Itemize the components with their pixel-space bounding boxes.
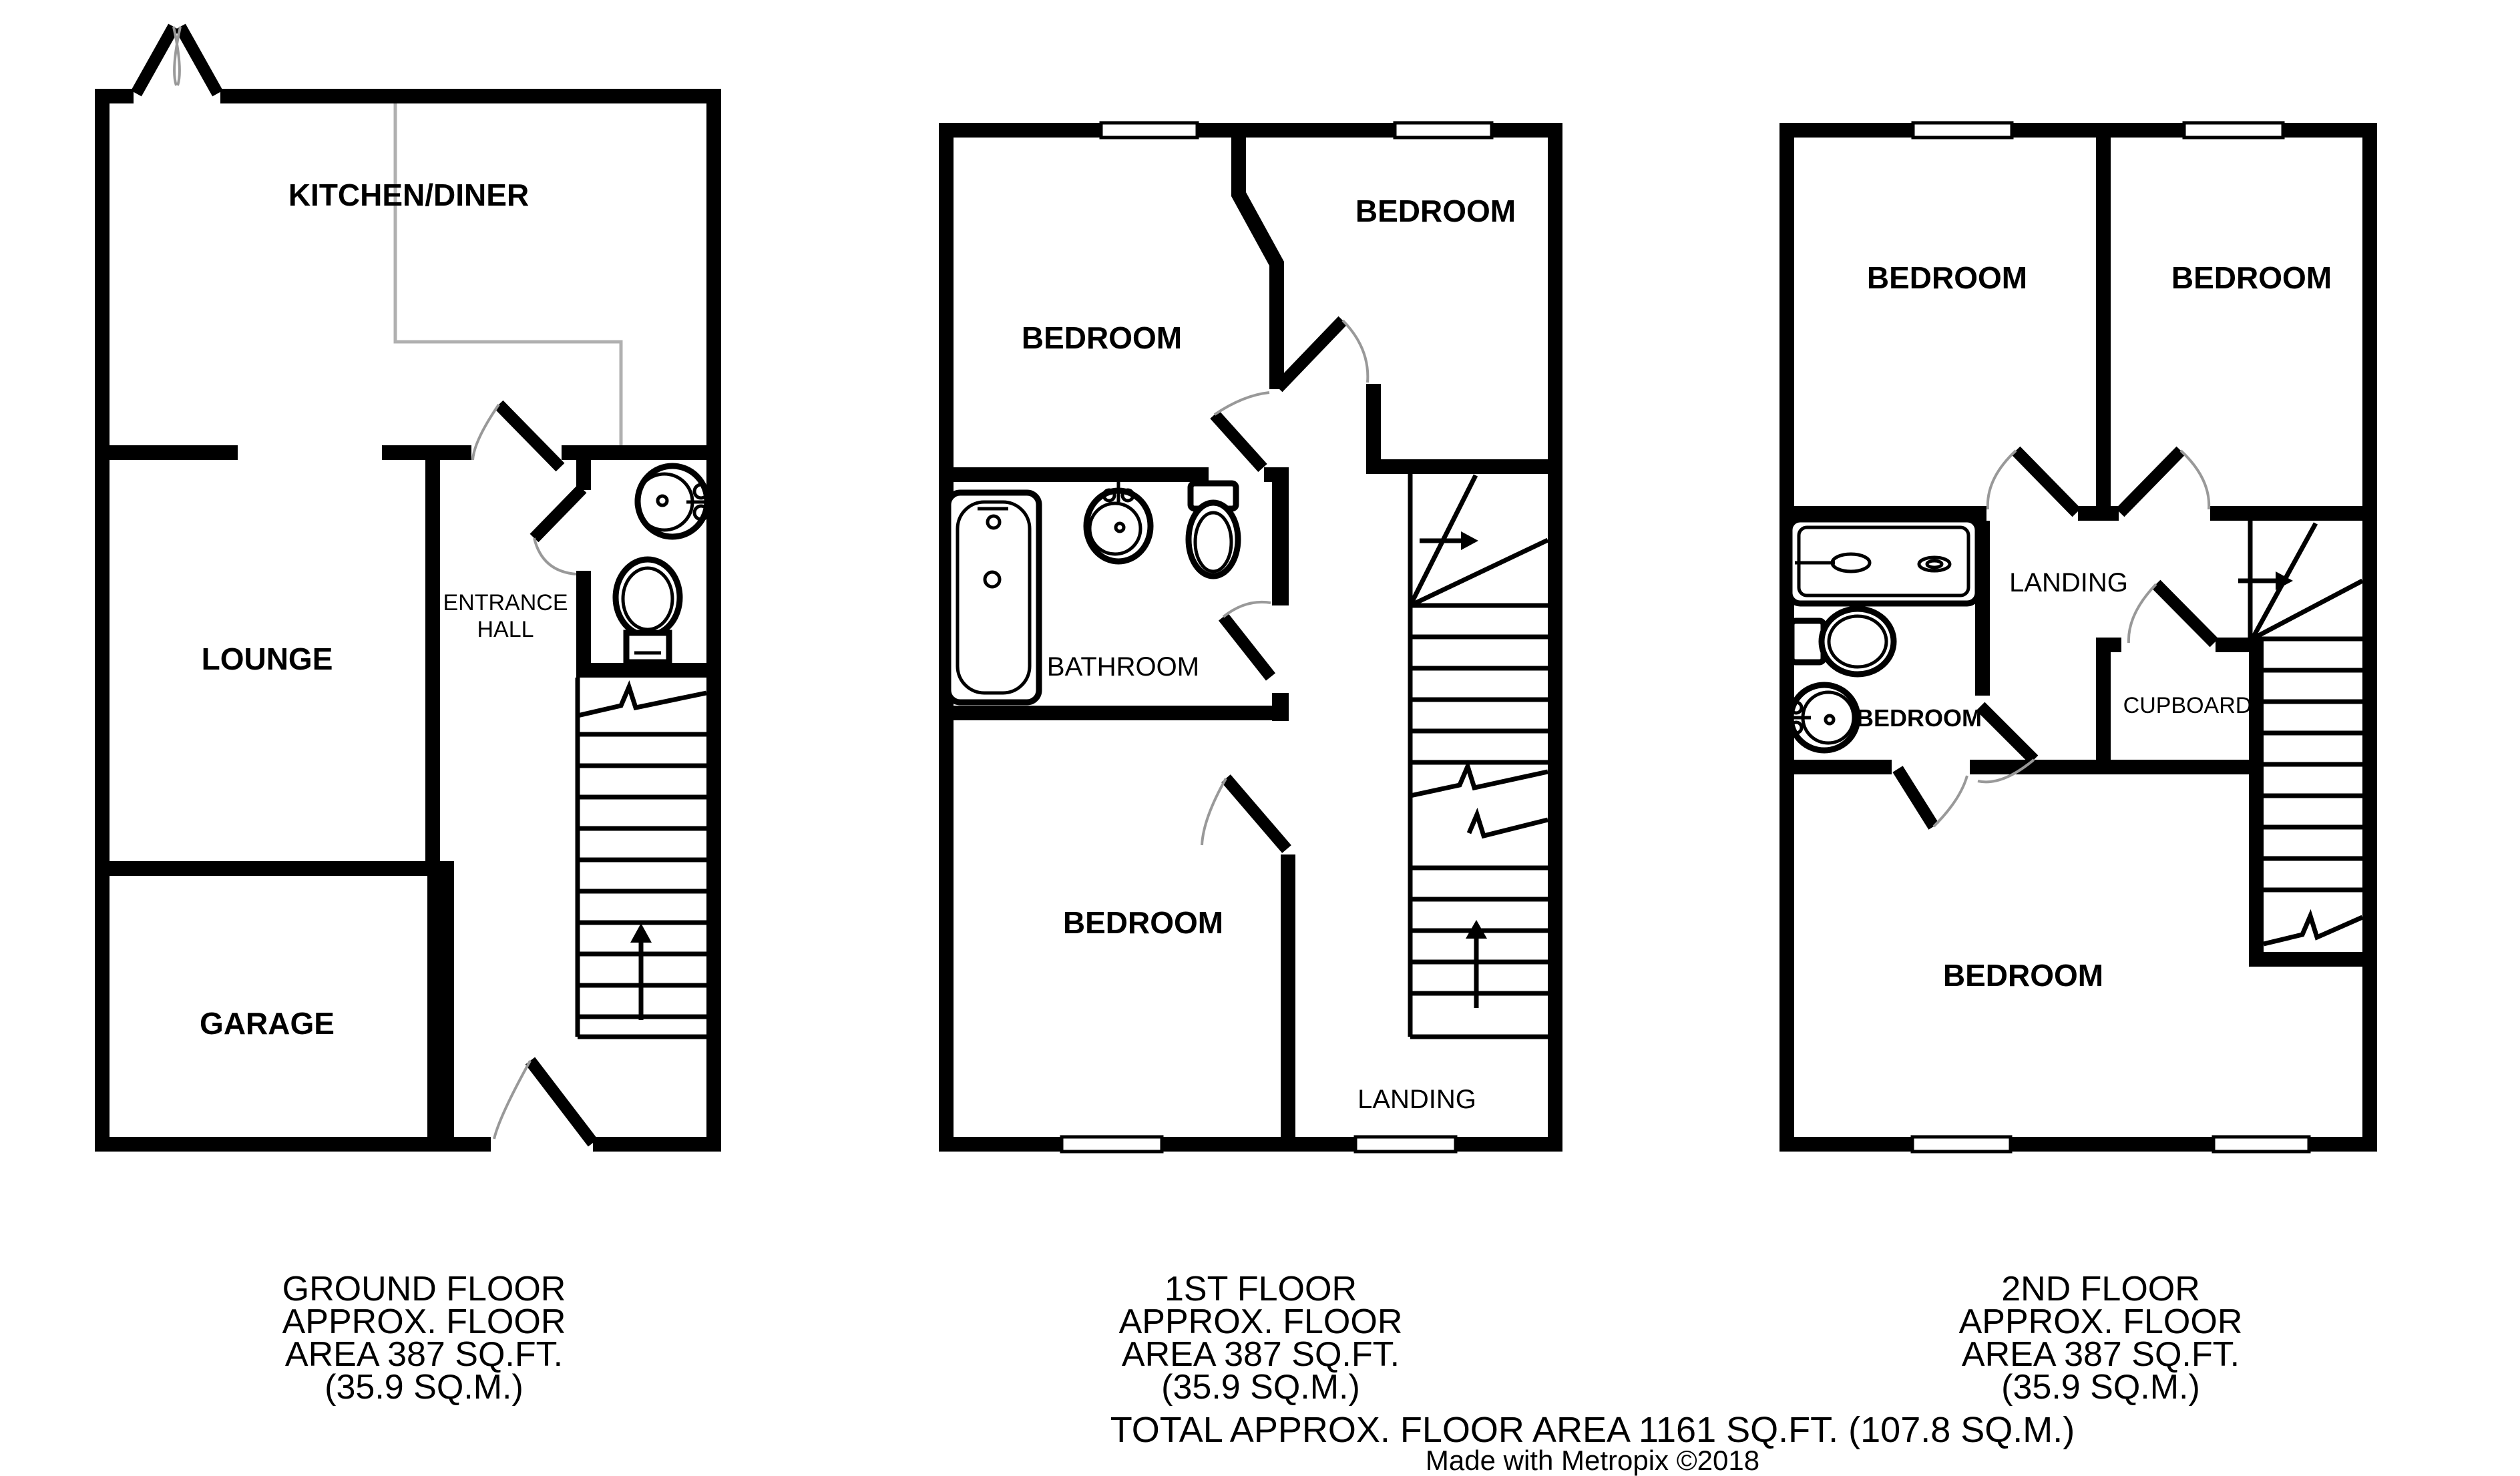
bedroom-back-door-arc [1343, 320, 1368, 383]
footer-line: (35.9 SQ.M.) [325, 1368, 523, 1407]
room-label-lounge: LOUNGE [202, 642, 333, 676]
ground-floor-plan: KITCHEN/DINER LOUNGE ENTRANCE HALL GARAG… [95, 27, 721, 1152]
bedroom-main-door-leaf [1898, 769, 1934, 826]
wc-door-leaf [534, 489, 582, 538]
stair-break-line [1410, 766, 1548, 796]
room-label-entrance-line2: HALL [477, 617, 534, 642]
second-floor-footer: 2ND FLOOR APPROX. FLOOR AREA 387 SQ.FT. … [1959, 1270, 2243, 1407]
bedroom-back-door-leaf [1278, 320, 1343, 388]
wc-door-arc [534, 538, 576, 574]
stair-right-arrowhead [1461, 531, 1478, 550]
floorplan-page: KITCHEN/DINER LOUNGE ENTRANCE HALL GARAG… [0, 0, 2520, 1476]
window [2184, 123, 2283, 138]
window [1395, 123, 1492, 138]
room-label-bedroom-left: BEDROOM [1867, 260, 2027, 295]
ensuite-bath-icon [1790, 519, 1978, 603]
second-floor-plan: BEDROOM BEDROOM LANDING BEDROOM CUPBOARD… [1779, 123, 2377, 1152]
kitchen-hall-door-leaf [499, 405, 560, 467]
bedroom-right-door-leaf [2120, 451, 2181, 513]
bedroom-main-door-arc [1934, 776, 1967, 826]
bathroom-sink-icon [1086, 482, 1150, 561]
bedroom-front-door-arc [1215, 393, 1269, 415]
bathroom-toilet-icon [1189, 483, 1238, 576]
room-label-bedroom-front: BEDROOM [1022, 320, 1182, 355]
bedroom-right-door-arc [2181, 451, 2209, 509]
window [1913, 123, 2012, 138]
cupboard-door-arc [2129, 584, 2156, 643]
bedroom-rear-door-leaf [1226, 778, 1287, 849]
room-label-kitchen-diner: KITCHEN/DINER [288, 178, 529, 212]
bedroom-front-door-leaf [1215, 415, 1263, 468]
cupboard-door-leaf [2156, 584, 2214, 643]
room-label-ensuite-bedroom: BEDROOM [1856, 704, 1982, 732]
room-label-garage: GARAGE [200, 1006, 335, 1041]
stair-up-arrowhead [630, 923, 652, 943]
footer-line: (35.9 SQ.M.) [2001, 1368, 2200, 1407]
room-label-bedroom-main: BEDROOM [1943, 958, 2103, 993]
room-label-cupboard: CUPBOARD [2123, 693, 2252, 718]
ensuite-toilet-icon [1792, 609, 1894, 674]
window [1355, 1137, 1456, 1152]
stair-break-line [1469, 814, 1548, 836]
room-label-bedroom-right: BEDROOM [2171, 260, 2332, 295]
room-label-bedroom-rear: BEDROOM [1063, 905, 1223, 940]
window [1062, 1137, 1162, 1152]
front-door-arc [494, 1061, 530, 1139]
ensuite-sink-icon [1791, 685, 1858, 750]
bathtub-icon [948, 493, 1039, 702]
metropix-credit: Made with Metropix ©2018 [1426, 1445, 1759, 1476]
wc-sink-icon [636, 466, 708, 537]
bedroom-left-door-leaf [2016, 451, 2077, 513]
window [2214, 1137, 2309, 1152]
french-door-left-leaf [136, 27, 174, 93]
window [1101, 123, 1197, 138]
room-label-landing-first: LANDING [1357, 1085, 1476, 1114]
floorplan-canvas: KITCHEN/DINER LOUNGE ENTRANCE HALL GARAG… [0, 0, 2520, 1476]
room-label-entrance-line1: ENTRANCE [443, 590, 568, 616]
ensuite-door-leaf [1980, 706, 2034, 760]
ground-staircase [578, 678, 706, 1037]
bathroom-door-leaf [1223, 617, 1271, 677]
room-label-bathroom: BATHROOM [1047, 652, 1199, 682]
window [1912, 1137, 2011, 1152]
first-floor-footer: 1ST FLOOR APPROX. FLOOR AREA 387 SQ.FT. … [1119, 1270, 1403, 1407]
bedroom-rear-door-arc [1202, 778, 1226, 845]
room-label-landing-second: LANDING [2009, 568, 2128, 597]
stair-break-line [578, 687, 706, 716]
stair-break-line [2264, 916, 2362, 944]
kitchen-hall-door-arc [473, 405, 499, 460]
french-door-right-leaf [180, 27, 218, 93]
total-area-text: TOTAL APPROX. FLOOR AREA 1161 SQ.FT. (10… [1110, 1410, 2075, 1450]
front-door-leaf [530, 1061, 593, 1143]
room-label-bedroom-back: BEDROOM [1355, 194, 1516, 228]
bathroom-door-arc [1223, 602, 1271, 617]
first-staircase [1410, 474, 1548, 1037]
wc-toilet-icon [616, 559, 680, 662]
bedroom-left-door-arc [1988, 451, 2016, 509]
kitchen-counter-line [395, 103, 621, 445]
ground-floor-footer: GROUND FLOOR APPROX. FLOOR AREA 387 SQ.F… [282, 1270, 566, 1407]
footer-line: (35.9 SQ.M.) [1161, 1368, 1360, 1407]
first-floor-plan: BEDROOM BEDROOM BATHROOM BEDROOM LANDING [939, 123, 1562, 1152]
